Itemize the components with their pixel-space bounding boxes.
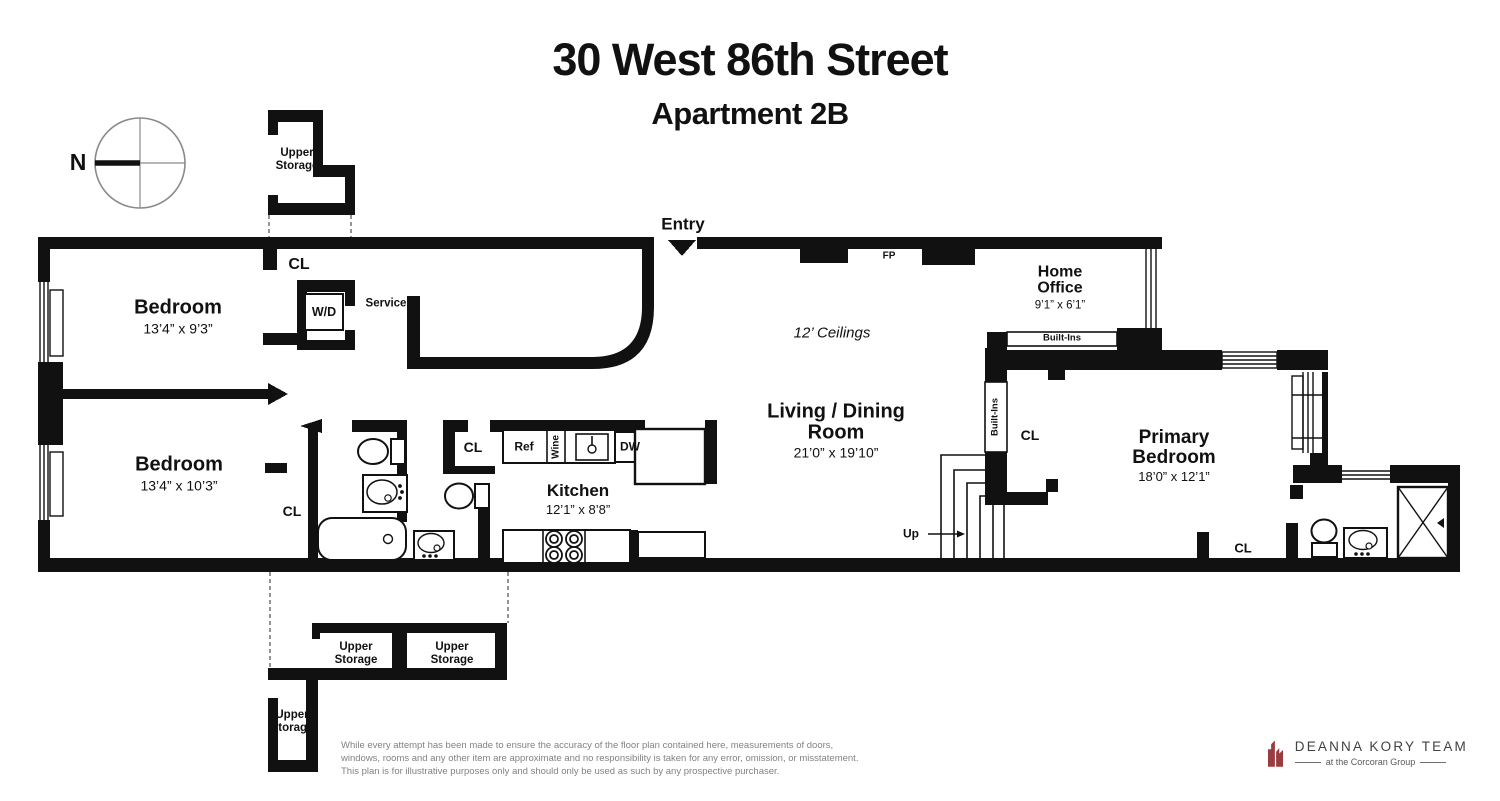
refrigerator-label: Ref [514,440,533,453]
sink-icon [363,475,407,512]
room-label-primary-bedroom: Primary Bedroom 18’0” x 12’1” [1124,428,1224,484]
page-subtitle: Apartment 2B [651,96,848,132]
stove-counter [503,530,630,563]
stairs-up-label: Up [903,527,919,540]
upper-storage-label-c: Upper Storage [266,709,318,735]
logo-team-name: DEANNA KORY TEAM [1295,739,1468,754]
disclaimer-line: This plan is for illustrative purposes o… [341,765,858,778]
kitchen-cabinet [638,532,705,558]
room-label-bedroom1: Bedroom 13’4” x 9’3” [134,298,222,337]
closet-label-bedroom1: CL [288,256,309,274]
kitchen-counter [503,429,705,484]
dishwasher-label: DW [620,440,640,453]
floorplan-page: 30 West 86th Street Apartment 2B N Upper… [0,0,1500,801]
room-label-home-office: Home Office 9’1” x 6’1” [1025,265,1095,312]
disclaimer-text: While every attempt has been made to ens… [341,739,858,778]
upper-storage-label-b: Upper Storage [425,641,479,667]
closet-label-primary-bath: CL [1234,542,1251,557]
closet-label-bathroom2: CL [464,440,483,456]
built-ins-label-horizontal: Built-Ins [1043,334,1081,345]
entry-label: Entry [661,214,704,233]
closet-label-primary: CL [1021,428,1040,444]
shower-icon [1398,487,1448,558]
disclaimer-line: While every attempt has been made to ens… [341,739,858,752]
upper-storage-label-top: Upper Storage [270,147,324,173]
logo-building-icon [1268,728,1287,778]
service-entrance-label: Service [366,298,407,311]
closet-label-bedroom2: CL [283,504,302,520]
logo-dash-left [1295,762,1321,763]
compass-icon [95,118,185,208]
logo-tagline: at the Corcoran Group [1326,757,1416,767]
ceiling-height-note: 12’ Ceilings [794,326,871,343]
toilet-icon [358,439,405,464]
sink-icon [1344,528,1387,558]
compass-north-label: N [70,150,87,176]
disclaimer-line: windows, rooms and any other item are ap… [341,752,858,765]
toilet-icon [1312,520,1338,558]
room-label-living-dining: Living / Dining Room 21’0” x 19’10” [756,401,916,460]
sink-icon [414,531,454,560]
bathtub-icon [318,518,406,560]
walls [38,110,1460,772]
upper-storage-label-a: Upper Storage [329,641,383,667]
wine-fridge-label: Wine [550,435,561,459]
deanna-kory-team-logo: DEANNA KORY TEAM at the Corcoran Group [1268,728,1468,778]
room-label-kitchen: Kitchen 12’1” x 8’8” [546,482,610,517]
washer-dryer-label: W/D [312,305,336,319]
service-corridor-wall [407,249,654,369]
built-ins-label-vertical: Built-Ins [991,398,1002,436]
toilet-icon [445,484,489,509]
kitchen-peninsula [635,429,705,484]
fireplace-label: FP [883,250,896,261]
up-arrow-icon [928,531,965,538]
logo-dash-right [1420,762,1446,763]
room-label-bedroom2: Bedroom 13’4” x 10’3” [135,455,223,494]
page-title: 30 West 86th Street [552,34,947,86]
